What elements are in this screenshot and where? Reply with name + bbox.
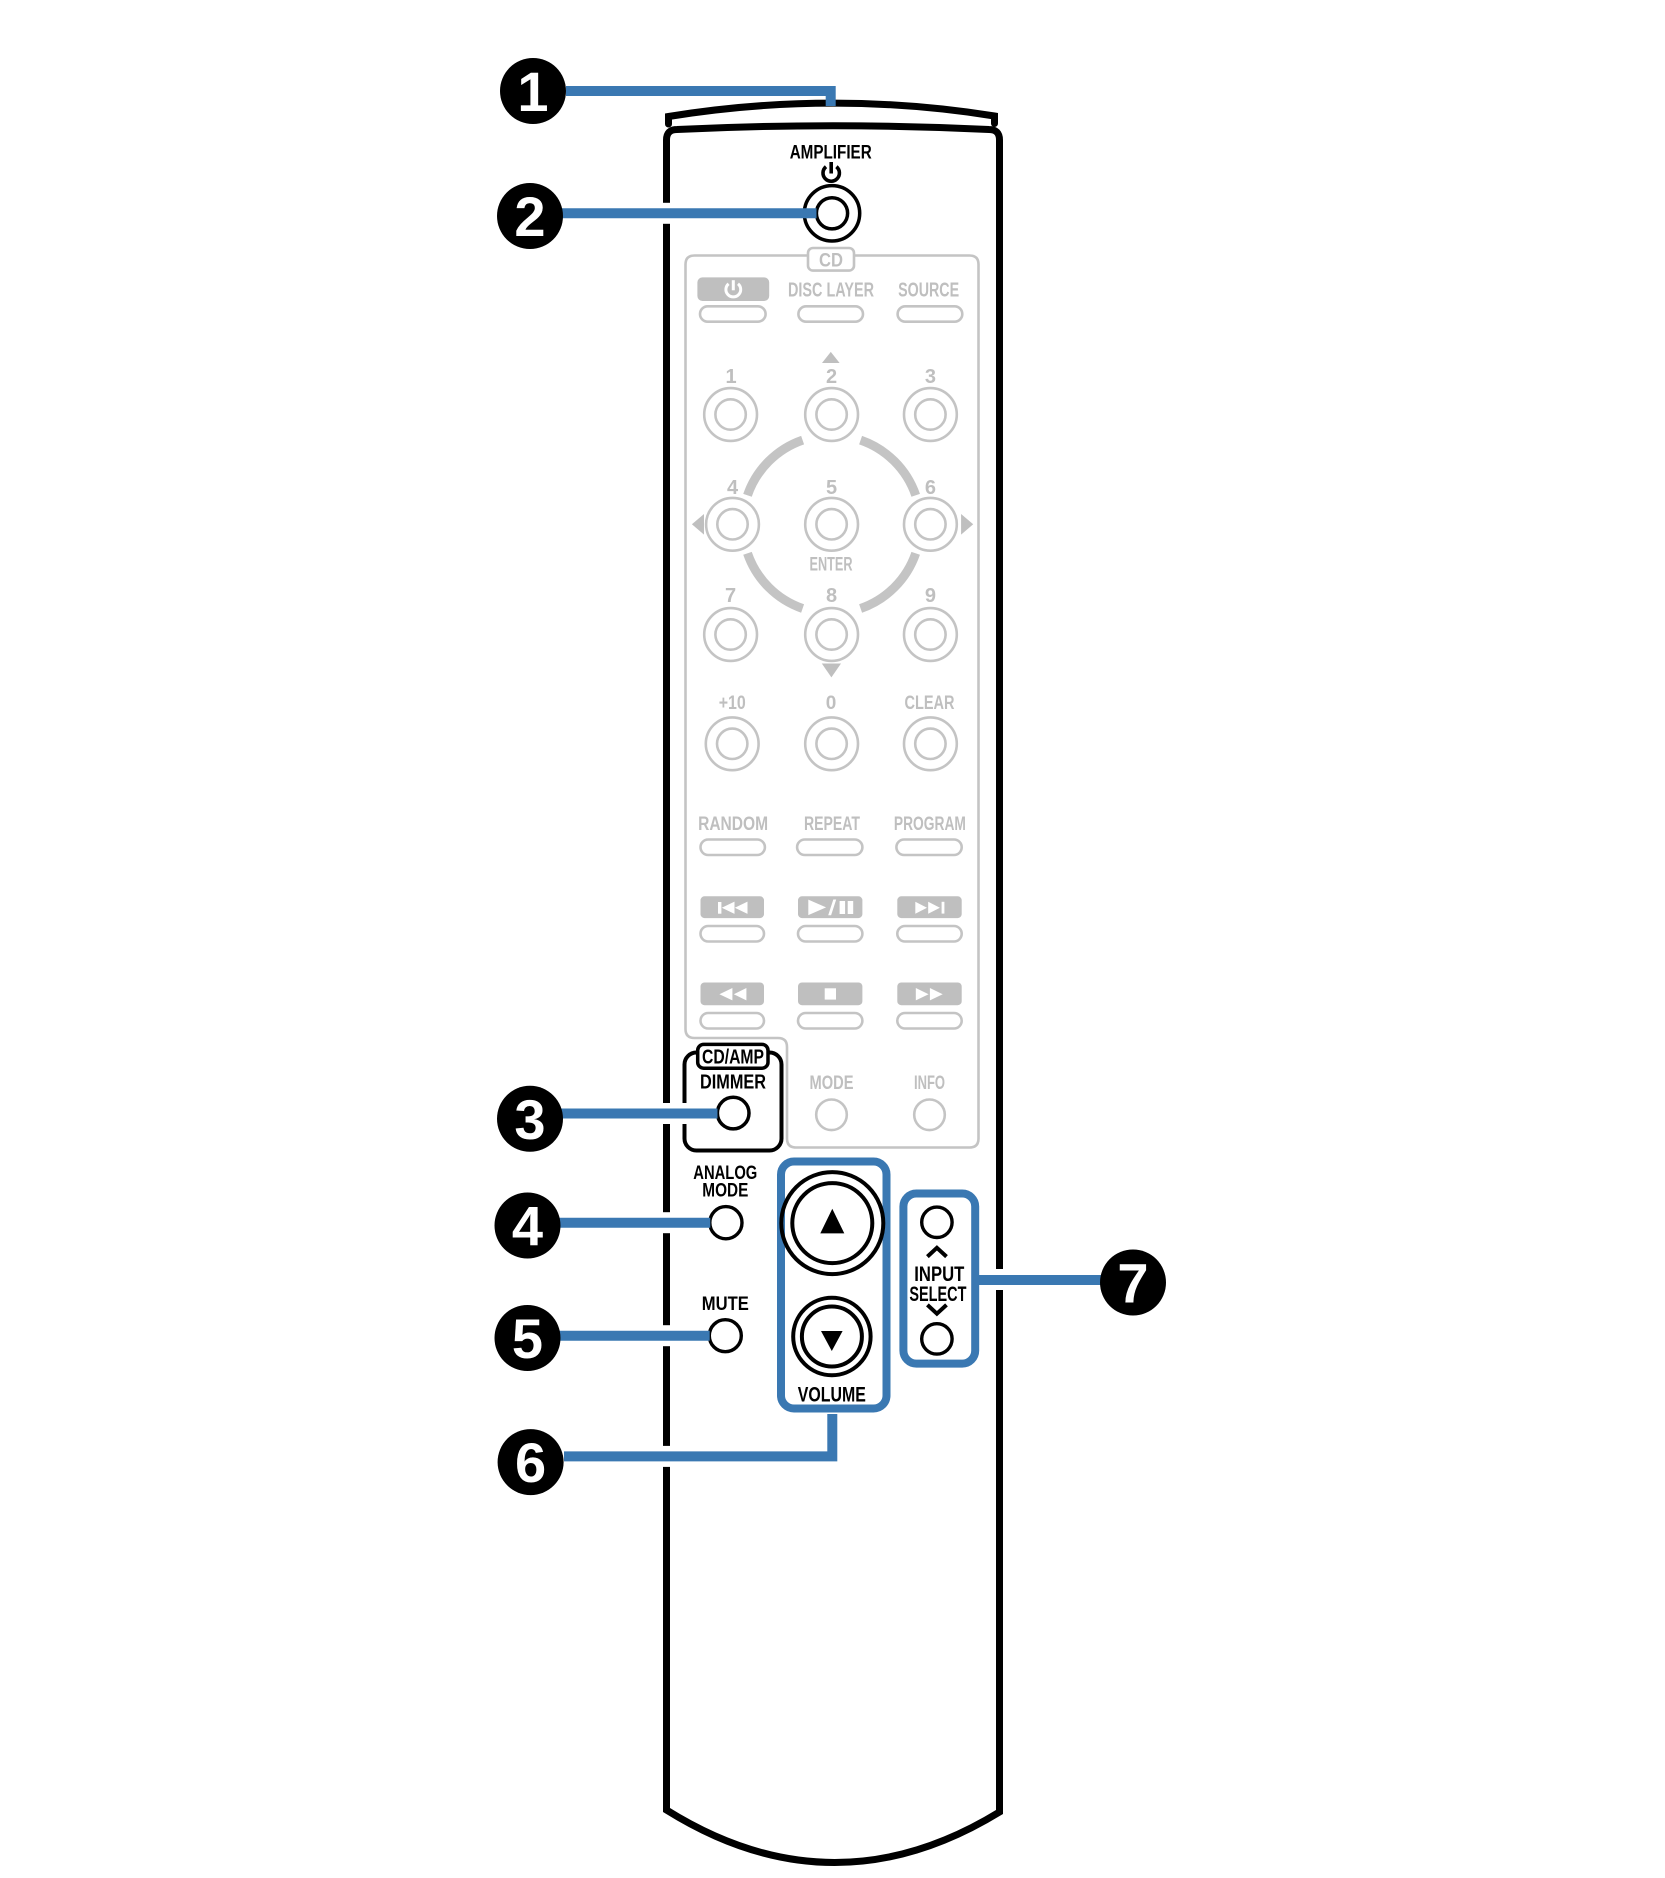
svg-text:2: 2: [826, 366, 837, 388]
svg-text:5: 5: [826, 477, 837, 499]
svg-text:6: 6: [515, 1431, 546, 1494]
svg-text:CLEAR: CLEAR: [905, 693, 955, 714]
svg-text:MODE: MODE: [810, 1073, 854, 1094]
svg-text:ENTER: ENTER: [810, 555, 853, 576]
svg-text:DISC LAYER: DISC LAYER: [788, 280, 874, 302]
svg-text:PROGRAM: PROGRAM: [894, 814, 966, 835]
svg-text:5: 5: [512, 1307, 543, 1370]
svg-text:MUTE: MUTE: [702, 1293, 749, 1315]
svg-text:+10: +10: [719, 693, 746, 714]
svg-text:CD/AMP: CD/AMP: [702, 1047, 764, 1069]
svg-text:AMPLIFIER: AMPLIFIER: [790, 142, 872, 164]
svg-text:SOURCE: SOURCE: [898, 280, 959, 302]
svg-text:3: 3: [925, 366, 936, 388]
svg-text:CD: CD: [819, 250, 843, 271]
svg-text:REPEAT: REPEAT: [804, 814, 860, 835]
svg-text:INFO: INFO: [914, 1073, 945, 1094]
svg-text:DIMMER: DIMMER: [700, 1071, 766, 1093]
svg-text:8: 8: [826, 585, 837, 607]
svg-text:1: 1: [725, 366, 736, 388]
svg-text:9: 9: [925, 585, 936, 607]
svg-text:MODE: MODE: [702, 1180, 748, 1202]
svg-text:1: 1: [517, 60, 548, 123]
svg-text:7: 7: [1117, 1252, 1148, 1315]
svg-text:6: 6: [925, 477, 936, 499]
svg-text:4: 4: [727, 477, 739, 499]
svg-text:0: 0: [826, 693, 837, 714]
svg-text:7: 7: [725, 585, 736, 607]
svg-text:3: 3: [514, 1088, 545, 1151]
svg-text:RANDOM: RANDOM: [698, 814, 768, 835]
svg-text:VOLUME: VOLUME: [798, 1384, 866, 1407]
svg-text:4: 4: [512, 1195, 543, 1258]
svg-text:SELECT: SELECT: [909, 1283, 966, 1306]
svg-text:2: 2: [514, 185, 545, 248]
